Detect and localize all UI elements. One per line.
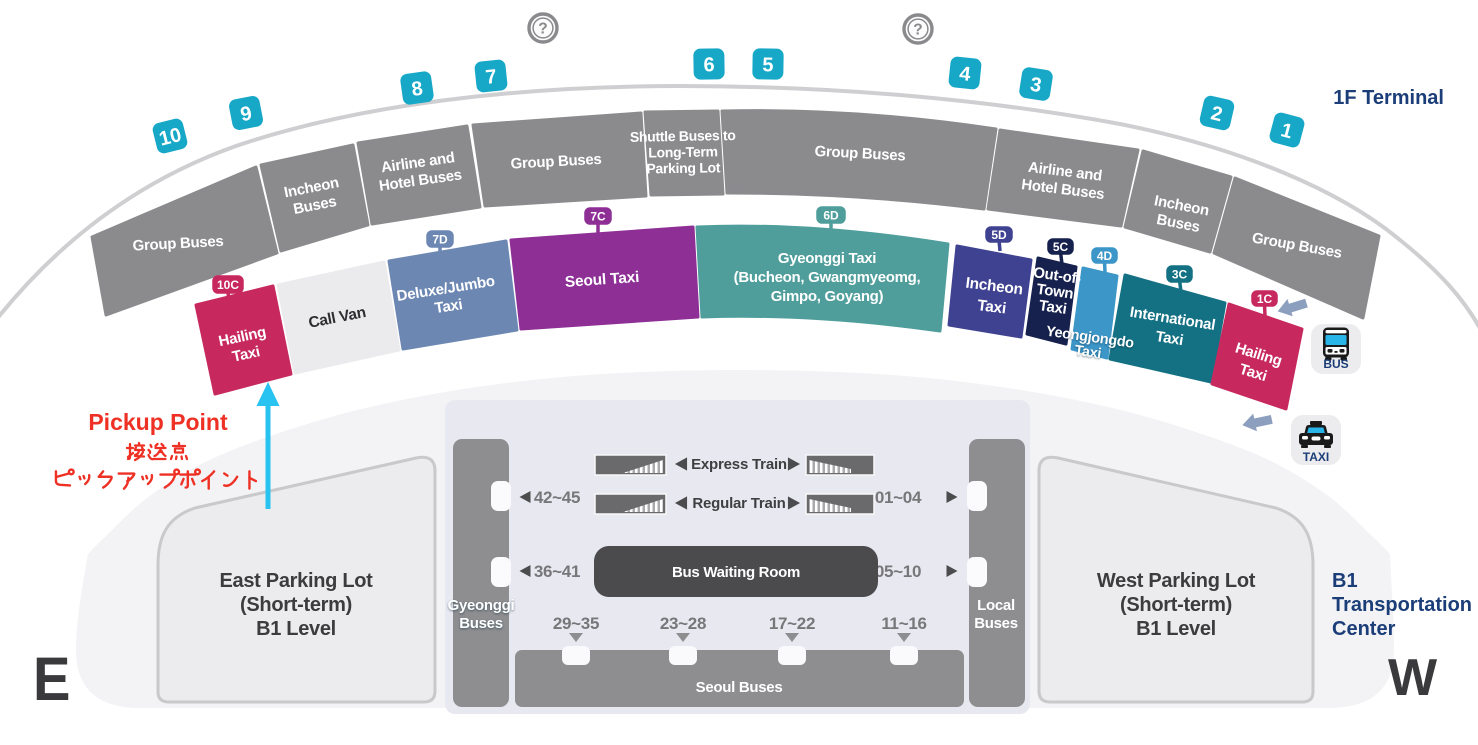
svg-text:TAXI: TAXI: [1303, 450, 1329, 464]
svg-text:LocalBuses: LocalBuses: [974, 597, 1018, 632]
svg-text:5: 5: [762, 54, 774, 76]
svg-text:Bus Waiting Room: Bus Waiting Room: [672, 564, 800, 581]
svg-text:4D: 4D: [1097, 249, 1113, 263]
svg-text:6D: 6D: [823, 208, 839, 222]
svg-text:01~04: 01~04: [875, 488, 922, 507]
svg-text:7C: 7C: [590, 209, 606, 223]
svg-text:17~22: 17~22: [769, 614, 815, 633]
svg-text:5C: 5C: [1053, 240, 1069, 254]
svg-text:1F Terminal: 1F Terminal: [1333, 87, 1444, 109]
svg-text:Pickup Point: Pickup Point: [88, 409, 228, 435]
svg-text:Transportation: Transportation: [1332, 594, 1472, 616]
svg-text:23~28: 23~28: [660, 614, 706, 633]
svg-text:?: ?: [538, 20, 547, 37]
svg-text:11~16: 11~16: [881, 614, 926, 633]
svg-text:Seoul Buses: Seoul Buses: [696, 679, 783, 696]
svg-text:Express Train: Express Train: [691, 456, 787, 473]
svg-text:5D: 5D: [991, 228, 1007, 242]
svg-text:E: E: [33, 646, 70, 714]
svg-text:B1: B1: [1332, 570, 1358, 592]
svg-text:36~41: 36~41: [534, 562, 580, 581]
svg-text:Regular Train: Regular Train: [692, 495, 785, 512]
svg-text:6: 6: [703, 54, 715, 76]
svg-text:7: 7: [484, 66, 497, 89]
svg-text:29~35: 29~35: [553, 614, 599, 633]
svg-text:7D: 7D: [432, 232, 448, 246]
svg-text:?: ?: [913, 21, 922, 38]
svg-text:BUS: BUS: [1323, 357, 1348, 371]
svg-text:W: W: [1388, 649, 1438, 707]
svg-text:3C: 3C: [1172, 267, 1188, 281]
svg-text:42~45: 42~45: [534, 488, 580, 507]
svg-text:05~10: 05~10: [875, 562, 921, 581]
svg-text:1C: 1C: [1257, 292, 1273, 306]
svg-text:10C: 10C: [217, 278, 239, 292]
svg-text:Center: Center: [1332, 618, 1396, 640]
